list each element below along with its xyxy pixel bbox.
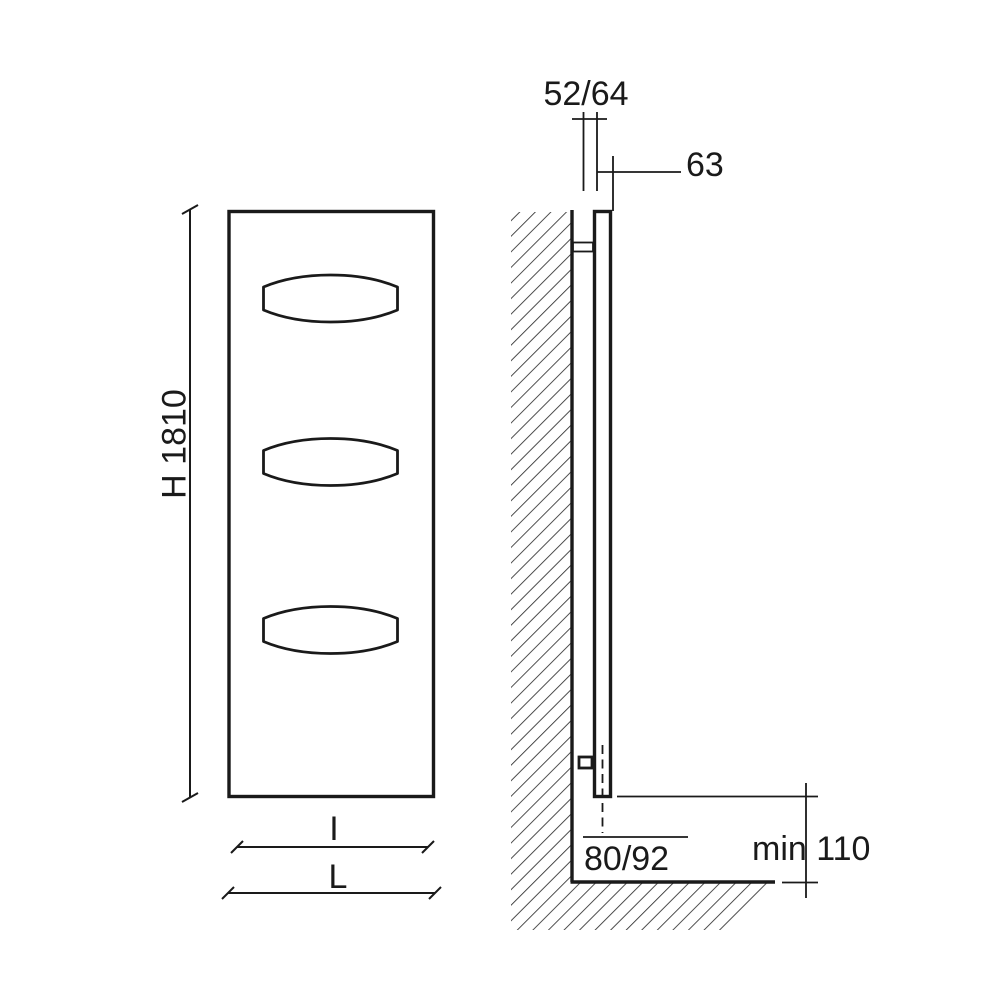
- front-view: H 1810 I L: [156, 205, 442, 899]
- panel-side-profile: [595, 212, 611, 797]
- height-dimension: H 1810: [156, 205, 199, 802]
- front-panel-outline: [229, 212, 434, 797]
- wall-offset-dimension-label: 63: [686, 146, 724, 184]
- depth-dimension-label: 52/64: [543, 75, 628, 113]
- pipe-axis-dimension: 80/92: [583, 837, 688, 878]
- overall-width-dimension-label: L: [329, 858, 348, 896]
- height-dimension-label: H 1810: [156, 389, 194, 499]
- technical-diagram-canvas: H 1810 I L: [0, 0, 1000, 1000]
- lower-mounting-bracket: [579, 757, 592, 768]
- wall-floor-hatch: [511, 212, 775, 930]
- floor-clearance-dimension-label: min 110: [752, 830, 870, 868]
- overall-width-dimension: L: [222, 858, 441, 899]
- radiator-dimension-drawing: H 1810 I L: [0, 0, 1000, 1000]
- side-view: 52/64 63 80/92 min 110: [511, 75, 870, 930]
- inner-width-dimension: I: [231, 810, 434, 853]
- wall-offset-dimension: 63: [597, 146, 724, 211]
- upper-mounting-bracket: [573, 243, 593, 252]
- depth-dimension: 52/64: [543, 75, 628, 191]
- pipe-axis-dimension-label: 80/92: [584, 840, 669, 878]
- inner-width-dimension-label: I: [329, 810, 338, 848]
